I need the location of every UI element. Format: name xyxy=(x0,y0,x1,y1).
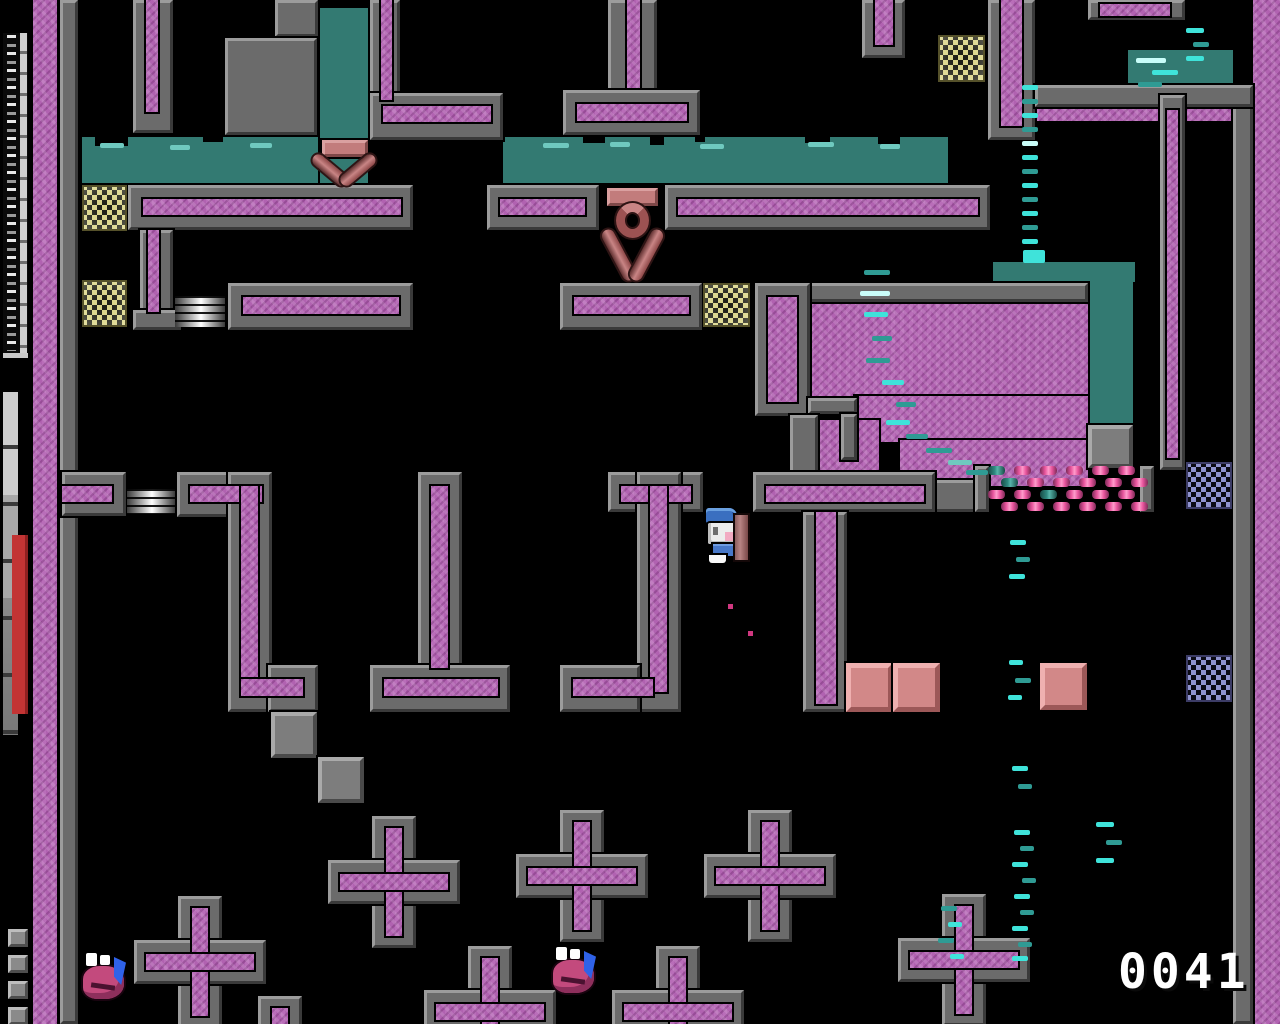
platform xyxy=(808,283,1088,302)
water-droplet xyxy=(170,145,190,150)
inventory-slot xyxy=(8,981,28,999)
water-droplet xyxy=(1096,822,1114,827)
cross-platform-core xyxy=(340,874,448,890)
water-droplet xyxy=(1022,169,1038,174)
platform-core xyxy=(1100,4,1170,16)
water-droplet xyxy=(926,448,952,453)
water-droplet xyxy=(1012,956,1028,961)
inventory-slot xyxy=(8,955,28,973)
chain-link xyxy=(1118,490,1135,499)
water-droplet xyxy=(966,470,988,475)
water-droplet xyxy=(1020,846,1034,851)
water-droplet xyxy=(1022,99,1038,104)
rope-cross xyxy=(316,153,374,189)
water-droplet xyxy=(1022,85,1038,90)
cross-platform-core xyxy=(716,868,824,884)
platform xyxy=(275,0,318,37)
water-droplet xyxy=(1022,211,1038,216)
chain-link xyxy=(1092,466,1109,475)
inventory-slot xyxy=(8,1007,28,1024)
cross-platform-core xyxy=(910,952,1018,968)
chain-link xyxy=(1066,466,1083,475)
water-droplet xyxy=(882,380,904,385)
chain-link xyxy=(1014,466,1031,475)
water-droplet xyxy=(1012,926,1028,931)
checker-block-yellow xyxy=(938,35,985,82)
water-notch xyxy=(203,137,223,142)
purple-rock xyxy=(855,396,1088,442)
brick-block xyxy=(893,663,940,712)
platform xyxy=(1233,88,1253,1024)
spring-coil xyxy=(127,489,175,514)
spark-particle xyxy=(728,604,733,609)
platform-core xyxy=(1167,110,1178,458)
inventory-slots xyxy=(8,929,28,1024)
cross-platform-core xyxy=(436,1004,544,1020)
fish-eye xyxy=(100,955,110,965)
stone-block xyxy=(1088,425,1133,468)
game-viewport[interactable]: 0041 xyxy=(0,0,1280,1024)
water-droplet xyxy=(1022,239,1038,244)
platform xyxy=(1035,85,1253,107)
spark-particle xyxy=(748,631,753,636)
water-droplet xyxy=(1014,894,1030,899)
platform-core xyxy=(62,486,112,502)
water-droplet xyxy=(1012,766,1028,771)
water-droplet xyxy=(1096,858,1114,863)
stone-block xyxy=(271,712,317,758)
water-notch xyxy=(650,137,664,145)
water-droplet xyxy=(896,402,916,407)
water-droplet xyxy=(880,144,900,149)
water-droplet xyxy=(1015,678,1031,683)
platform xyxy=(841,414,857,460)
inventory-slot xyxy=(8,929,28,947)
platform-core xyxy=(383,106,491,122)
water-droplet xyxy=(938,938,954,943)
health-bar xyxy=(12,535,28,714)
fish-eye xyxy=(86,953,97,966)
chain-link xyxy=(1040,466,1057,475)
water-droplet xyxy=(808,142,834,147)
fish-enemy xyxy=(553,947,597,997)
player-cap xyxy=(706,508,737,523)
water-droplet xyxy=(872,336,892,341)
water-droplet xyxy=(1008,695,1022,700)
water-droplet xyxy=(1022,155,1038,160)
water-droplet xyxy=(1022,225,1038,230)
chain-link xyxy=(1014,490,1031,499)
water-droplet xyxy=(1022,141,1038,146)
brick-block xyxy=(1040,663,1087,710)
spring-coil xyxy=(175,296,225,327)
rope-cross-part xyxy=(338,152,378,188)
chain-link xyxy=(1105,478,1122,487)
platform-core xyxy=(816,512,836,704)
water-notch xyxy=(878,137,900,144)
platform-core xyxy=(143,199,401,215)
water-droplet xyxy=(1010,540,1026,545)
fish-enemy xyxy=(83,953,127,1003)
platform-core xyxy=(678,199,978,215)
checker-block-blue xyxy=(1186,462,1232,509)
chain-link xyxy=(1131,478,1148,487)
platform-core xyxy=(500,199,585,215)
water-droplet xyxy=(1009,574,1025,579)
chain-link xyxy=(1001,478,1018,487)
water-droplet xyxy=(1136,58,1166,63)
water-droplet xyxy=(906,434,928,439)
chain-link xyxy=(988,490,1005,499)
water-droplet xyxy=(1020,910,1034,915)
platform xyxy=(790,415,818,477)
fish-eye xyxy=(556,947,567,960)
water-droplet xyxy=(1018,784,1032,789)
water-droplet xyxy=(1018,942,1032,947)
platform-core xyxy=(577,104,687,121)
rope-knot-part xyxy=(616,203,649,238)
platform-core xyxy=(384,679,498,696)
water-droplet xyxy=(1012,862,1028,867)
water-droplet xyxy=(1152,70,1178,75)
chain-link xyxy=(1027,478,1044,487)
stone-block xyxy=(318,757,364,803)
water-droplet xyxy=(864,270,890,275)
platform xyxy=(808,398,857,414)
chain-link xyxy=(1053,478,1070,487)
platform-core xyxy=(381,0,392,100)
player-character xyxy=(704,508,752,562)
water-droplet xyxy=(866,358,890,363)
cross-platform-core xyxy=(624,1004,732,1020)
platform-core xyxy=(574,297,689,314)
water-droplet xyxy=(886,420,910,425)
water-droplet xyxy=(1022,113,1038,118)
brick-block xyxy=(846,663,893,712)
checker-block-yellow xyxy=(82,185,127,231)
water-droplet xyxy=(1023,250,1045,263)
platform-core xyxy=(766,486,924,502)
chain-link xyxy=(1079,478,1096,487)
purple-rock xyxy=(810,300,1088,398)
level-gauge-icon xyxy=(3,33,28,358)
water-droplet xyxy=(1022,878,1036,883)
chain-link xyxy=(1027,502,1044,511)
chain-link xyxy=(1118,466,1135,475)
player-boot xyxy=(709,555,726,563)
chain-link xyxy=(1105,502,1122,511)
chain-link xyxy=(1040,490,1057,499)
platform-core xyxy=(243,297,399,314)
chain-link xyxy=(1066,490,1083,499)
platform xyxy=(133,310,181,330)
chain-link xyxy=(1001,502,1018,511)
water-droplet xyxy=(860,291,890,296)
chain-link xyxy=(1092,490,1109,499)
checker-block-yellow xyxy=(82,280,127,327)
water-droplet xyxy=(1193,42,1209,47)
player-eye xyxy=(713,527,718,535)
water-droplet xyxy=(543,143,569,148)
cross-platform-core xyxy=(146,954,254,970)
platform-core xyxy=(148,230,159,312)
score-display: 0041 xyxy=(1118,944,1280,1000)
water-droplet xyxy=(1016,557,1030,562)
platform-core xyxy=(768,297,797,402)
water-droplet xyxy=(950,954,964,959)
chain-link xyxy=(988,466,1005,475)
platform-core xyxy=(573,679,653,696)
water-droplet xyxy=(1022,183,1038,188)
platform xyxy=(225,38,317,135)
chain-link xyxy=(1131,502,1148,511)
water-notch xyxy=(695,137,705,142)
water-droplet xyxy=(948,922,962,927)
water-droplet xyxy=(1138,82,1162,87)
water-droplet xyxy=(1186,56,1204,61)
water-droplet xyxy=(1014,830,1030,835)
platform-core xyxy=(875,0,893,45)
water-droplet xyxy=(1022,127,1038,132)
checker-block-yellow xyxy=(703,283,750,327)
cross-platform-core xyxy=(528,868,636,884)
platform-core xyxy=(241,679,303,696)
water-notch xyxy=(583,137,605,143)
water-droplet xyxy=(100,143,124,148)
chain-link xyxy=(1079,502,1096,511)
chain-link xyxy=(1053,502,1070,511)
water xyxy=(1088,262,1133,425)
cross-platform-core xyxy=(272,1008,288,1024)
platform-core xyxy=(650,486,667,692)
platform-core xyxy=(1001,0,1022,126)
water-droplet xyxy=(1009,660,1023,665)
checker-block-blue xyxy=(1186,655,1232,702)
fish-eye xyxy=(570,949,580,959)
water-droplet xyxy=(610,142,630,147)
water-droplet xyxy=(948,460,972,465)
platform-core xyxy=(627,0,640,88)
water-droplet xyxy=(1022,197,1038,202)
water-droplet xyxy=(250,143,272,148)
platform-core xyxy=(146,0,158,112)
water-droplet xyxy=(1106,840,1122,845)
platform-core xyxy=(241,486,258,692)
water-droplet xyxy=(700,144,724,149)
water-droplet xyxy=(1186,28,1204,33)
water-droplet xyxy=(941,906,957,911)
water-droplet xyxy=(864,312,888,317)
rope-knot xyxy=(605,203,661,283)
player-cheek xyxy=(725,532,734,541)
player-plank xyxy=(735,515,748,560)
platform-core xyxy=(431,486,448,668)
level-geometry xyxy=(0,0,1280,1024)
